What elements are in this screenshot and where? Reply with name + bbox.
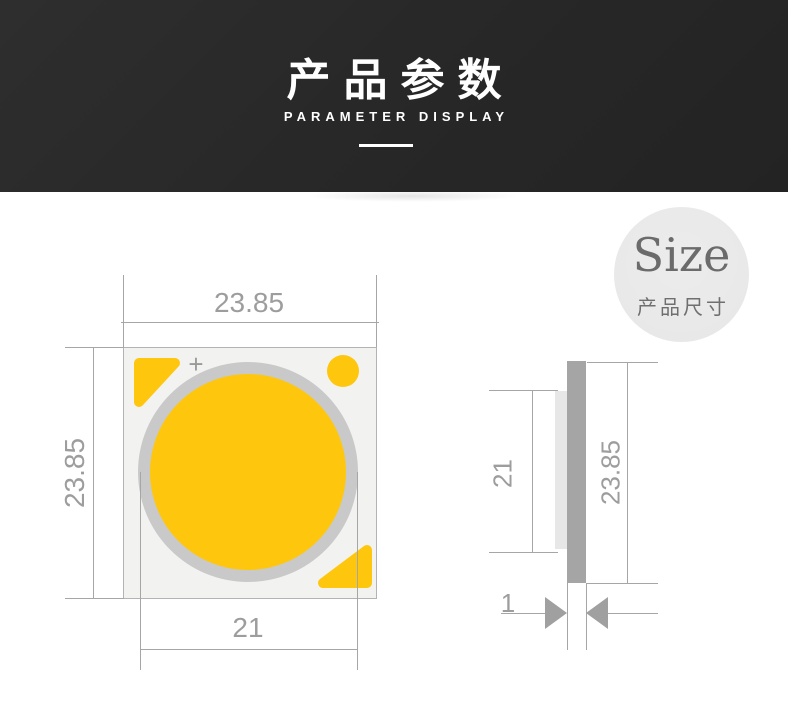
corner-triangle-top-left xyxy=(139,363,175,402)
extension-line xyxy=(65,347,124,348)
header-shadow xyxy=(305,190,520,202)
arrowhead-icon xyxy=(545,597,567,629)
extension-line xyxy=(357,472,358,670)
extension-line xyxy=(567,583,568,650)
extension-line xyxy=(587,583,658,584)
extension-line xyxy=(587,362,658,363)
extension-line xyxy=(140,472,141,670)
arrowhead-icon xyxy=(586,597,608,629)
extension-line xyxy=(489,552,558,553)
dimension-line-side-height xyxy=(627,362,628,584)
size-badge: Size 产品尺寸 xyxy=(614,207,749,342)
size-badge-title: Size xyxy=(614,231,749,279)
page-title: 产品参数 xyxy=(0,44,788,108)
dimension-line-side-les xyxy=(532,390,533,553)
side-view-emitting-layer xyxy=(555,391,567,549)
extension-line xyxy=(489,390,558,391)
side-view-substrate xyxy=(567,361,586,583)
dim-label-les-diameter: 21 xyxy=(198,612,298,644)
extension-line xyxy=(65,598,124,599)
dimension-line-bottom xyxy=(140,649,358,650)
extension-line xyxy=(123,275,124,347)
polarity-plus-mark: + xyxy=(183,351,209,377)
size-badge-subtitle: 产品尺寸 xyxy=(614,291,749,320)
dim-label-top-width: 23.85 xyxy=(199,287,299,319)
dim-label-left-height: 23.85 xyxy=(59,423,91,523)
cathode-dot xyxy=(327,355,359,387)
product-parameter-page: 产品参数 PARAMETER DISPLAY Size 产品尺寸 + 23.85… xyxy=(0,0,788,713)
title-underline xyxy=(359,144,413,147)
extension-line xyxy=(376,275,377,347)
arrow-leader-line xyxy=(608,613,658,614)
header-banner: 产品参数 PARAMETER DISPLAY xyxy=(0,0,788,192)
page-subtitle: PARAMETER DISPLAY xyxy=(0,109,788,124)
dim-label-thickness: 1 xyxy=(495,588,521,619)
dimension-line-left xyxy=(93,347,94,599)
dim-label-side-height: 23.85 xyxy=(596,423,627,523)
dim-label-side-les: 21 xyxy=(488,434,519,514)
dimension-line-top xyxy=(121,322,379,323)
corner-triangle-bottom-right xyxy=(323,550,367,583)
